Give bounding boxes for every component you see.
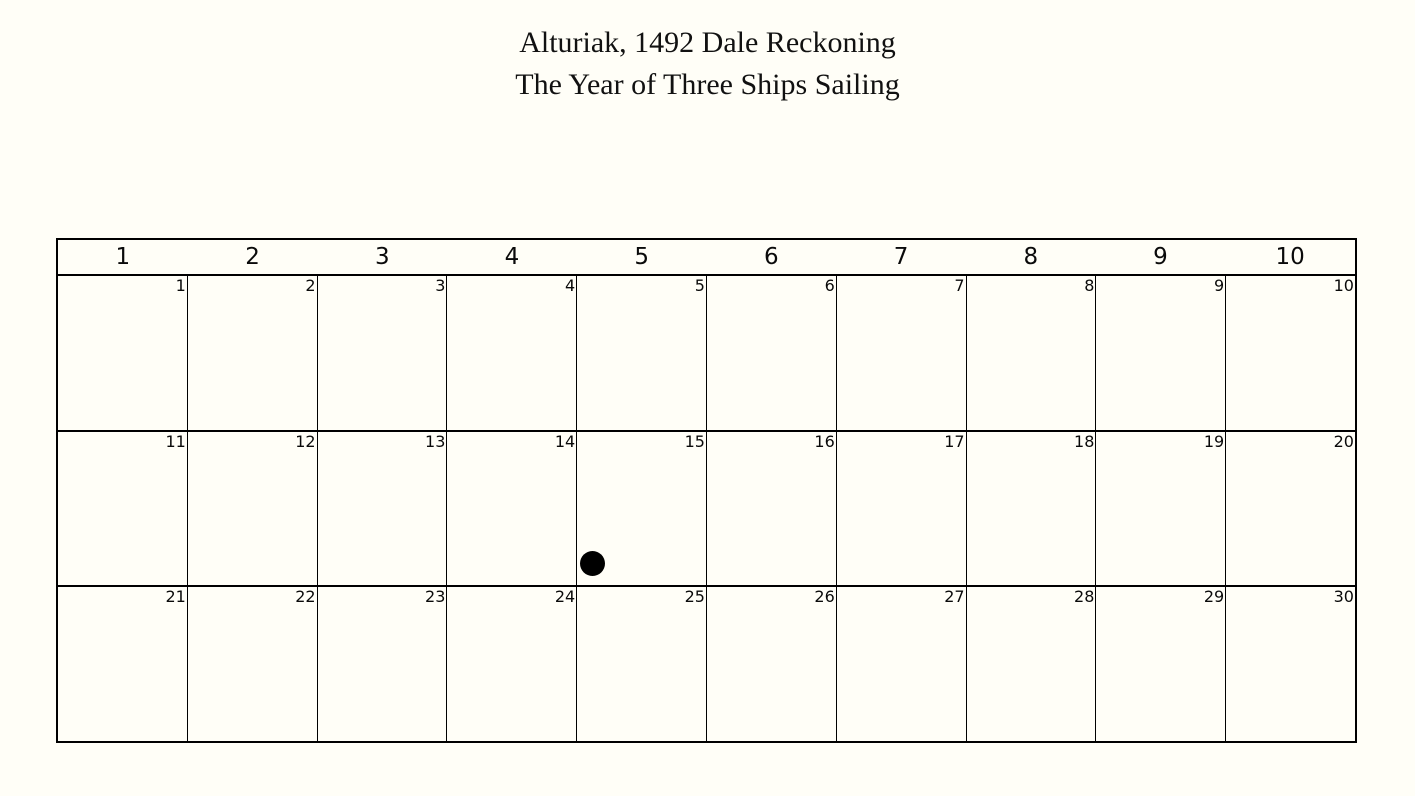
day-cell-7: 7: [837, 276, 967, 430]
day-cell-8: 8: [967, 276, 1097, 430]
day-number: 6: [825, 276, 835, 295]
day-number: 12: [295, 432, 315, 451]
day-cell-3: 3: [318, 276, 448, 430]
day-cell-28: 28: [967, 587, 1097, 741]
day-cell-30: 30: [1226, 587, 1355, 741]
week-row-2: 11 12 13 14 15 16 17 18 19 20: [58, 432, 1355, 588]
day-cell-26: 26: [707, 587, 837, 741]
day-number: 18: [1074, 432, 1094, 451]
day-cell-4: 4: [447, 276, 577, 430]
day-cell-9: 9: [1096, 276, 1226, 430]
day-cell-6: 6: [707, 276, 837, 430]
day-number: 11: [165, 432, 185, 451]
column-header-row: 1 2 3 4 5 6 7 8 9 10: [58, 240, 1355, 276]
week-row-3: 21 22 23 24 25 26 27 28 29 30: [58, 587, 1355, 741]
day-number: 9: [1214, 276, 1224, 295]
day-number: 24: [555, 587, 575, 606]
day-number: 1: [176, 276, 186, 295]
day-cell-1: 1: [58, 276, 188, 430]
day-cell-27: 27: [837, 587, 967, 741]
day-number: 20: [1334, 432, 1354, 451]
day-number: 15: [685, 432, 705, 451]
day-cell-17: 17: [837, 432, 967, 586]
event-marker-dot: [580, 551, 605, 576]
column-header-7: 7: [836, 240, 966, 274]
day-number: 26: [814, 587, 834, 606]
day-cell-13: 13: [318, 432, 448, 586]
day-number: 19: [1204, 432, 1224, 451]
day-cell-22: 22: [188, 587, 318, 741]
day-cell-24: 24: [447, 587, 577, 741]
week-row-1: 1 2 3 4 5 6 7 8 9 10: [58, 276, 1355, 432]
day-number: 27: [944, 587, 964, 606]
day-number: 2: [305, 276, 315, 295]
calendar-page: { "colors": { "background": "#FFFEF7", "…: [0, 0, 1415, 796]
day-number: 25: [685, 587, 705, 606]
column-header-2: 2: [188, 240, 318, 274]
day-number: 3: [435, 276, 445, 295]
day-number: 13: [425, 432, 445, 451]
day-cell-14: 14: [447, 432, 577, 586]
day-cell-15: 15: [577, 432, 707, 586]
day-cell-19: 19: [1096, 432, 1226, 586]
calendar-month-title: Alturiak, 1492 Dale Reckoning: [0, 22, 1415, 64]
column-header-4: 4: [447, 240, 577, 274]
column-header-9: 9: [1096, 240, 1226, 274]
column-header-3: 3: [317, 240, 447, 274]
day-cell-11: 11: [58, 432, 188, 586]
column-header-10: 10: [1225, 240, 1355, 274]
day-number: 16: [814, 432, 834, 451]
column-header-8: 8: [966, 240, 1096, 274]
day-number: 14: [555, 432, 575, 451]
column-header-1: 1: [58, 240, 188, 274]
day-cell-5: 5: [577, 276, 707, 430]
day-number: 29: [1204, 587, 1224, 606]
day-cell-29: 29: [1096, 587, 1226, 741]
title-block: Alturiak, 1492 Dale Reckoning The Year o…: [0, 22, 1415, 106]
day-cell-2: 2: [188, 276, 318, 430]
calendar-year-subtitle: The Year of Three Ships Sailing: [0, 64, 1415, 106]
day-number: 4: [565, 276, 575, 295]
day-number: 23: [425, 587, 445, 606]
column-header-6: 6: [707, 240, 837, 274]
day-number: 21: [165, 587, 185, 606]
day-cell-12: 12: [188, 432, 318, 586]
day-number: 22: [295, 587, 315, 606]
day-number: 28: [1074, 587, 1094, 606]
column-header-5: 5: [577, 240, 707, 274]
day-number: 10: [1334, 276, 1354, 295]
day-number: 7: [954, 276, 964, 295]
calendar-grid: 1 2 3 4 5 6 7 8 9 10 1 2 3 4 5 6 7 8 9 1…: [56, 238, 1357, 743]
day-cell-23: 23: [318, 587, 448, 741]
day-number: 17: [944, 432, 964, 451]
day-number: 5: [695, 276, 705, 295]
day-number: 8: [1084, 276, 1094, 295]
day-cell-18: 18: [967, 432, 1097, 586]
day-number: 30: [1334, 587, 1354, 606]
day-cell-10: 10: [1226, 276, 1355, 430]
day-cell-25: 25: [577, 587, 707, 741]
day-cell-20: 20: [1226, 432, 1355, 586]
day-cell-21: 21: [58, 587, 188, 741]
day-cell-16: 16: [707, 432, 837, 586]
